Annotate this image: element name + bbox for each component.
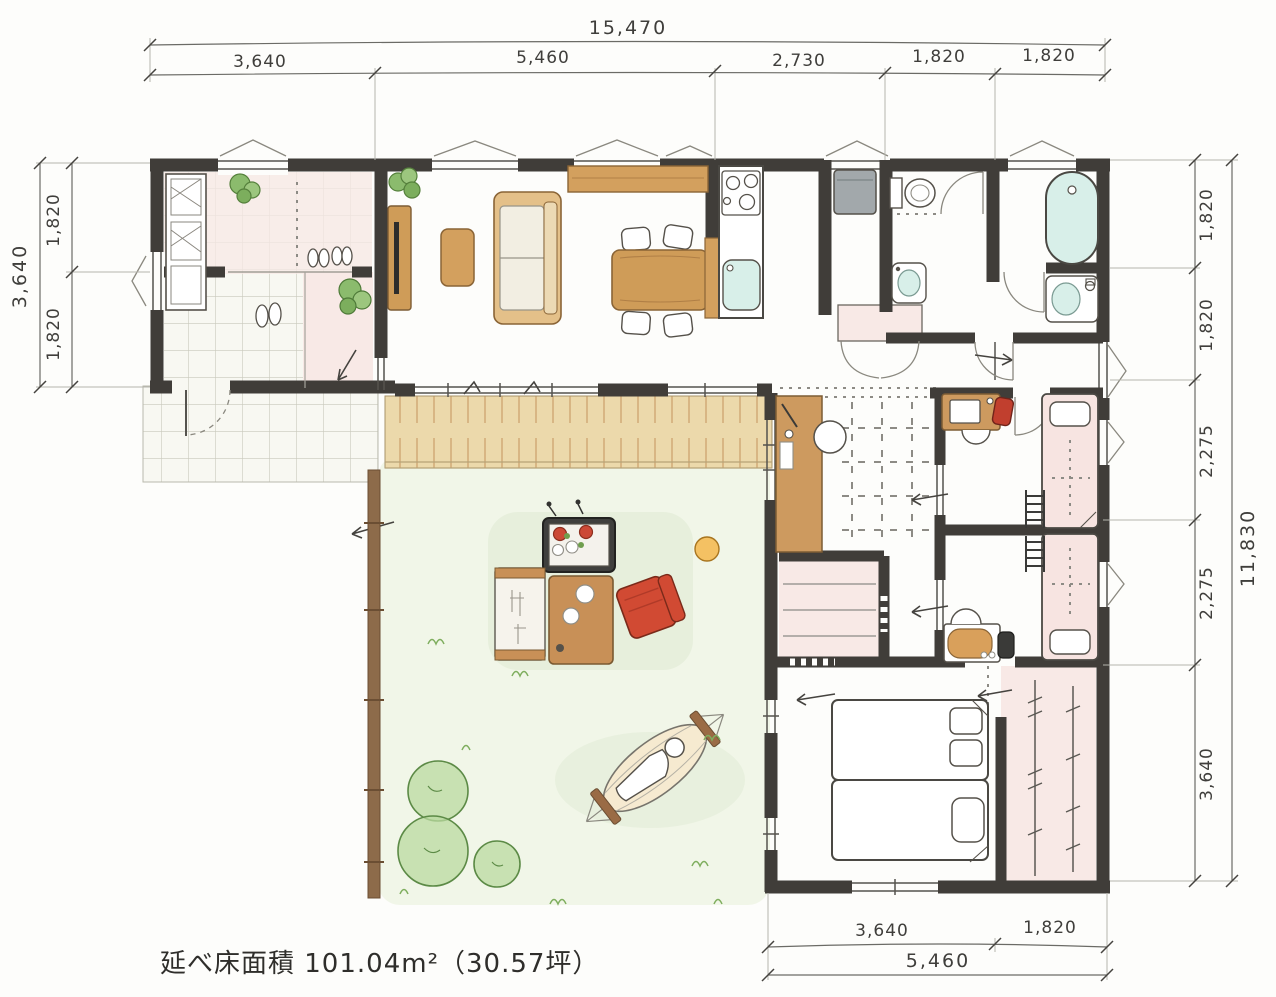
dim-top-seg-0: 3,640	[233, 52, 287, 72]
garden-bench	[495, 568, 545, 660]
toilet-washbasin	[892, 263, 926, 303]
dim-right-seg-1: 1,820	[1197, 298, 1217, 352]
potted-plant-ldk	[389, 168, 420, 198]
dim-top-seg-2: 2,730	[772, 51, 826, 71]
dim-right-seg-4: 3,640	[1197, 747, 1217, 801]
floor-area-note: 延べ床面積 101.04m²（30.57坪）	[160, 949, 599, 979]
dim-top-seg-4: 1,820	[1022, 46, 1076, 66]
kids-bedroom-1	[942, 394, 1098, 528]
garden-table	[549, 576, 613, 664]
dim-left-seg-1: 1,820	[44, 307, 64, 361]
coffee-table	[441, 229, 474, 286]
ldk-sliding-windows	[415, 382, 757, 397]
dim-top-total: 15,470	[589, 17, 667, 39]
kids-bedroom-2	[944, 534, 1098, 662]
master-bedroom-beds	[832, 700, 988, 862]
dim-left-seg-0: 1,820	[44, 193, 64, 247]
dim-bottom-total: 5,460	[906, 950, 970, 972]
left-wall-window	[132, 252, 167, 310]
dim-right-seg-2: 2,275	[1197, 424, 1217, 478]
dim-left-total: 3,640	[9, 244, 31, 308]
study-counter	[776, 396, 846, 552]
dim-right-total: 11,830	[1237, 509, 1259, 587]
floor-plan-canvas: 15,470 3,640 5,460 2,730 1,820 1,820 3,6…	[0, 0, 1276, 997]
bathtub	[1046, 172, 1098, 264]
dining-set	[612, 224, 708, 338]
washing-machine	[834, 170, 876, 214]
tv-board	[388, 206, 411, 310]
sofa	[494, 192, 561, 324]
dim-bottom-seg-0: 3,640	[855, 921, 909, 941]
vanity-basin	[1046, 276, 1098, 322]
shoe-cabinet	[166, 174, 206, 310]
dim-top-seg-1: 5,460	[516, 48, 570, 68]
yellow-ball	[695, 537, 719, 561]
dim-top-seg-3: 1,820	[912, 47, 966, 67]
kitchen-counter	[719, 166, 763, 318]
dim-bottom-seg-1: 1,820	[1023, 918, 1077, 938]
wood-deck	[385, 396, 772, 468]
floor-plan-page: 15,470 3,640 5,460 2,730 1,820 1,820 3,6…	[0, 0, 1276, 997]
toilet	[890, 178, 935, 208]
dim-right-seg-0: 1,820	[1197, 188, 1217, 242]
dim-right-seg-3: 2,275	[1197, 566, 1217, 620]
